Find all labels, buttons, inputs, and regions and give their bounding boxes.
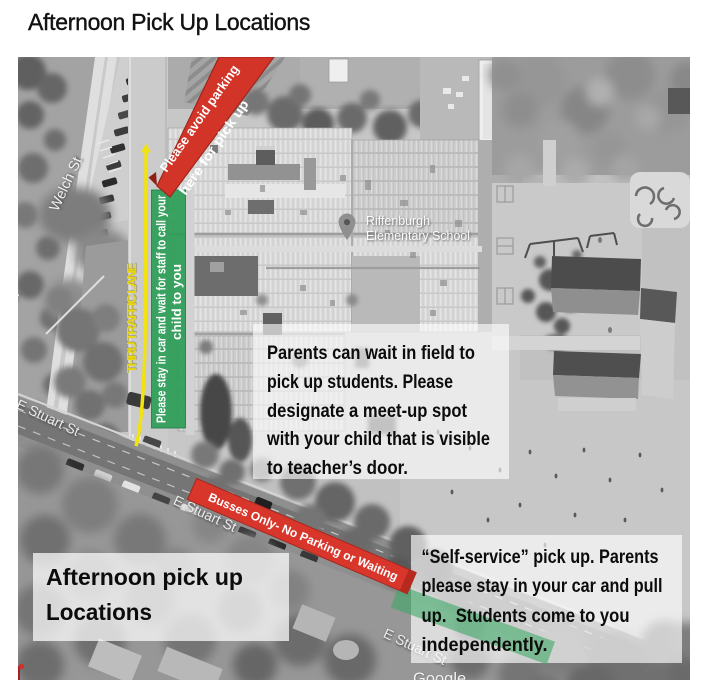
svg-text:child to you: child to you — [169, 264, 184, 340]
svg-text:please stay in your car and pu: please stay in your car and pull — [422, 576, 663, 597]
svg-text:Locations: Locations — [46, 599, 152, 625]
svg-text:to teacher’s door.: to teacher’s door. — [267, 458, 408, 479]
svg-text:designate a meet-up spot: designate a meet-up spot — [267, 401, 467, 422]
svg-text:Parents can wait in field to: Parents can wait in field to — [267, 343, 475, 364]
svg-text:Elementary School: Elementary School — [366, 228, 470, 243]
svg-text:independently.: independently. — [422, 635, 548, 656]
svg-text:Riffenburgh: Riffenburgh — [366, 213, 430, 228]
svg-text:Afternoon pick up: Afternoon pick up — [46, 564, 243, 590]
svg-text:Please stay in car and wait fo: Please stay in car and wait for staff to… — [154, 195, 169, 423]
svg-text:pick up students. Please: pick up students. Please — [267, 372, 453, 393]
svg-text:“Self-service” pick up. Parent: “Self-service” pick up. Parents — [422, 547, 659, 568]
svg-text:THRU TRAFFIC LANE: THRU TRAFFIC LANE — [124, 263, 139, 373]
svg-text:Google: Google — [413, 670, 466, 680]
svg-text:with your child that is visibl: with your child that is visible — [266, 429, 490, 450]
svg-text:up. Students come to you: up. Students come to you — [422, 606, 630, 627]
